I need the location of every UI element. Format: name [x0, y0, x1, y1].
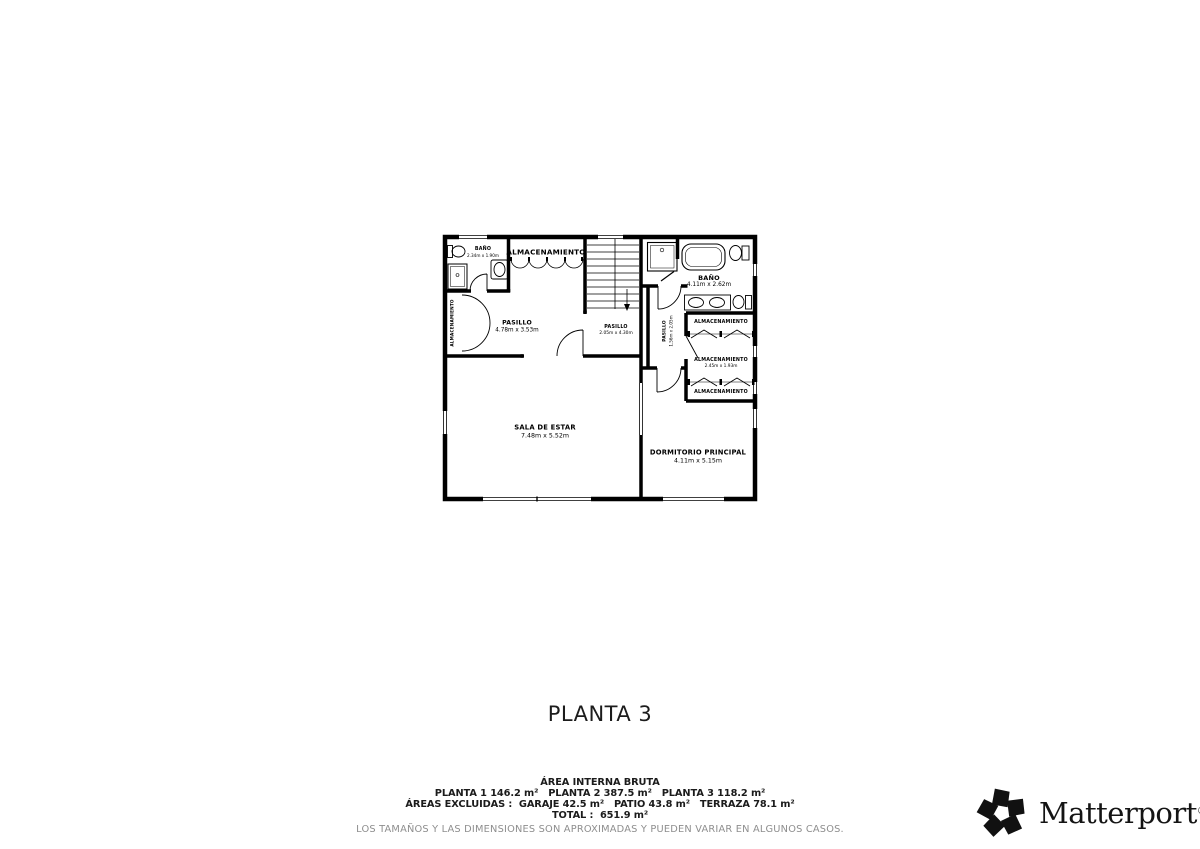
matterport-logo: Matterport® — [974, 784, 1200, 842]
double-sink-icon — [685, 295, 731, 310]
matterport-pinwheel-icon — [974, 785, 1030, 841]
shower-icon — [648, 243, 678, 282]
matterport-wordmark: Matterport® — [1039, 796, 1200, 830]
page: BAÑO 2.34m x 1.90m ALMACENAMIENTO ALMACE… — [0, 0, 1200, 849]
floor-plan: BAÑO 2.34m x 1.90m ALMACENAMIENTO ALMACE… — [441, 233, 759, 503]
stairs-icon — [587, 239, 639, 311]
sink-icon — [491, 260, 508, 279]
windows — [442, 234, 758, 502]
interior-walls — [445, 237, 757, 499]
toilet-icon — [448, 246, 466, 258]
bathtub-icon — [682, 244, 725, 270]
closet-accordion-icon — [510, 257, 583, 268]
shower-icon — [448, 264, 467, 289]
toilet-icon — [733, 296, 752, 310]
wall-caps — [507, 289, 587, 358]
toilet-icon — [730, 246, 750, 261]
floor-title: PLANTA 3 — [0, 702, 1200, 726]
floor-plan-drawing — [441, 233, 759, 503]
outer-walls — [445, 237, 755, 499]
